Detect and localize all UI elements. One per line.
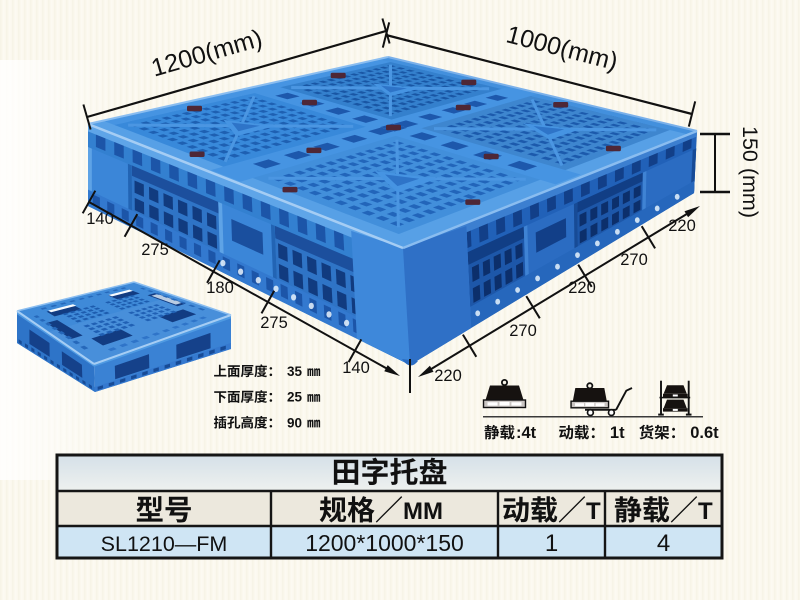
svg-text:T: T — [586, 498, 601, 525]
svg-text:MM: MM — [403, 498, 443, 525]
svg-text:90: 90 — [287, 415, 302, 430]
svg-text:275: 275 — [141, 241, 169, 259]
svg-text:1t: 1t — [610, 424, 625, 442]
svg-text:140: 140 — [342, 359, 370, 377]
svg-text:SL1210—FM: SL1210—FM — [101, 532, 228, 556]
svg-text:35: 35 — [287, 364, 303, 379]
svg-text:1: 1 — [545, 530, 558, 557]
svg-text:220: 220 — [434, 367, 462, 385]
svg-text:180: 180 — [206, 279, 234, 297]
svg-text:140: 140 — [86, 210, 114, 228]
svg-text:270: 270 — [620, 251, 648, 269]
svg-text:275: 275 — [260, 314, 288, 332]
svg-text:1200*1000*150: 1200*1000*150 — [305, 530, 464, 556]
svg-text:25: 25 — [287, 390, 303, 405]
svg-text:0.6t: 0.6t — [690, 424, 719, 442]
svg-text:220: 220 — [568, 279, 596, 297]
svg-text:220: 220 — [668, 217, 696, 235]
svg-text::4t: :4t — [516, 424, 537, 442]
svg-text:4: 4 — [657, 530, 670, 557]
svg-text:T: T — [698, 498, 713, 525]
svg-text:270: 270 — [509, 322, 537, 340]
svg-text:150 (mm): 150 (mm) — [738, 126, 762, 218]
